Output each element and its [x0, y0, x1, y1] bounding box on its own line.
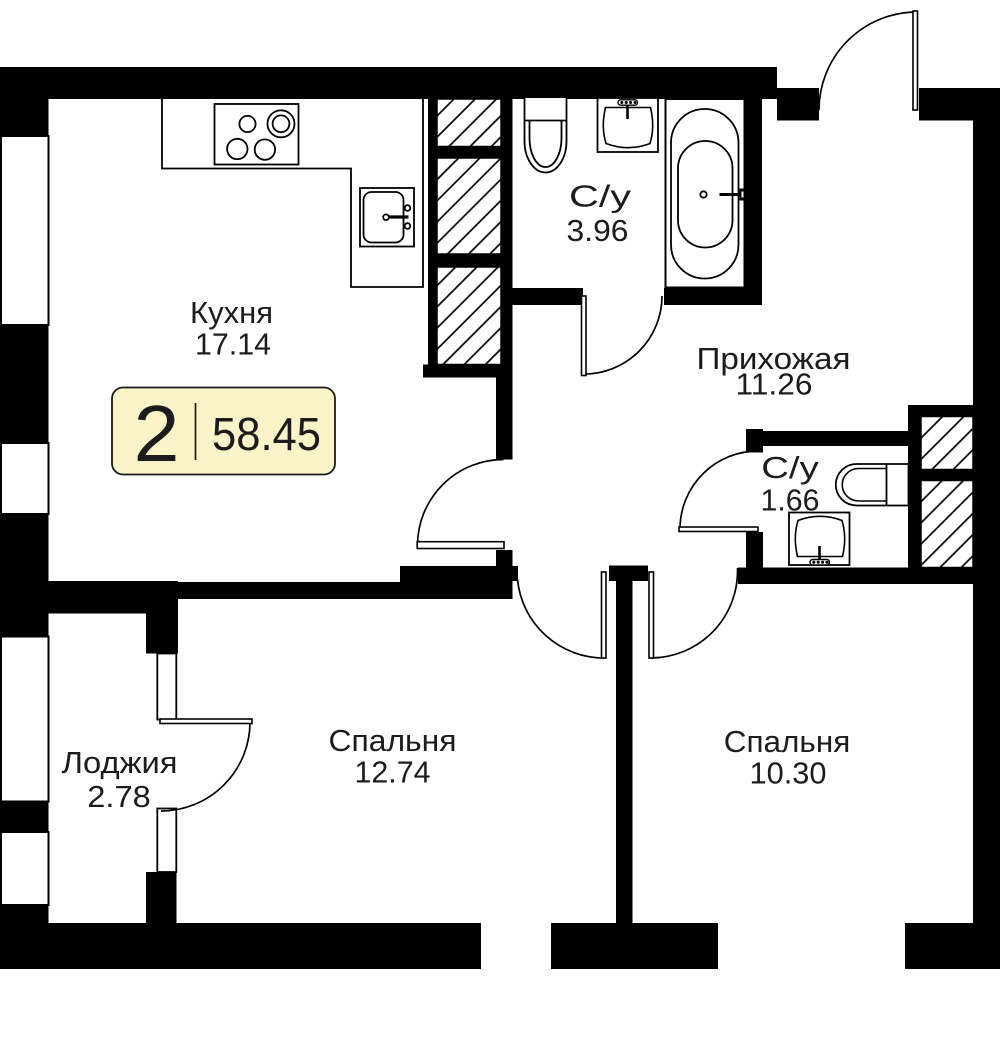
svg-text:Спальня: Спальня [329, 723, 457, 758]
svg-text:Лоджия: Лоджия [62, 745, 178, 780]
svg-text:11.26: 11.26 [736, 367, 813, 402]
svg-text:Кухня: Кухня [190, 295, 273, 330]
svg-text:С/у: С/у [569, 179, 632, 214]
svg-text:58.45: 58.45 [212, 408, 321, 460]
svg-text:С/у: С/у [761, 450, 819, 485]
svg-text:2.78: 2.78 [87, 779, 151, 814]
svg-text:17.14: 17.14 [195, 327, 271, 362]
svg-text:3.96: 3.96 [567, 213, 629, 248]
svg-text:12.74: 12.74 [355, 755, 431, 790]
svg-text:Спальня: Спальня [724, 724, 851, 759]
svg-text:1.66: 1.66 [761, 483, 820, 518]
svg-text:10.30: 10.30 [750, 756, 827, 791]
svg-text:2: 2 [134, 389, 180, 478]
